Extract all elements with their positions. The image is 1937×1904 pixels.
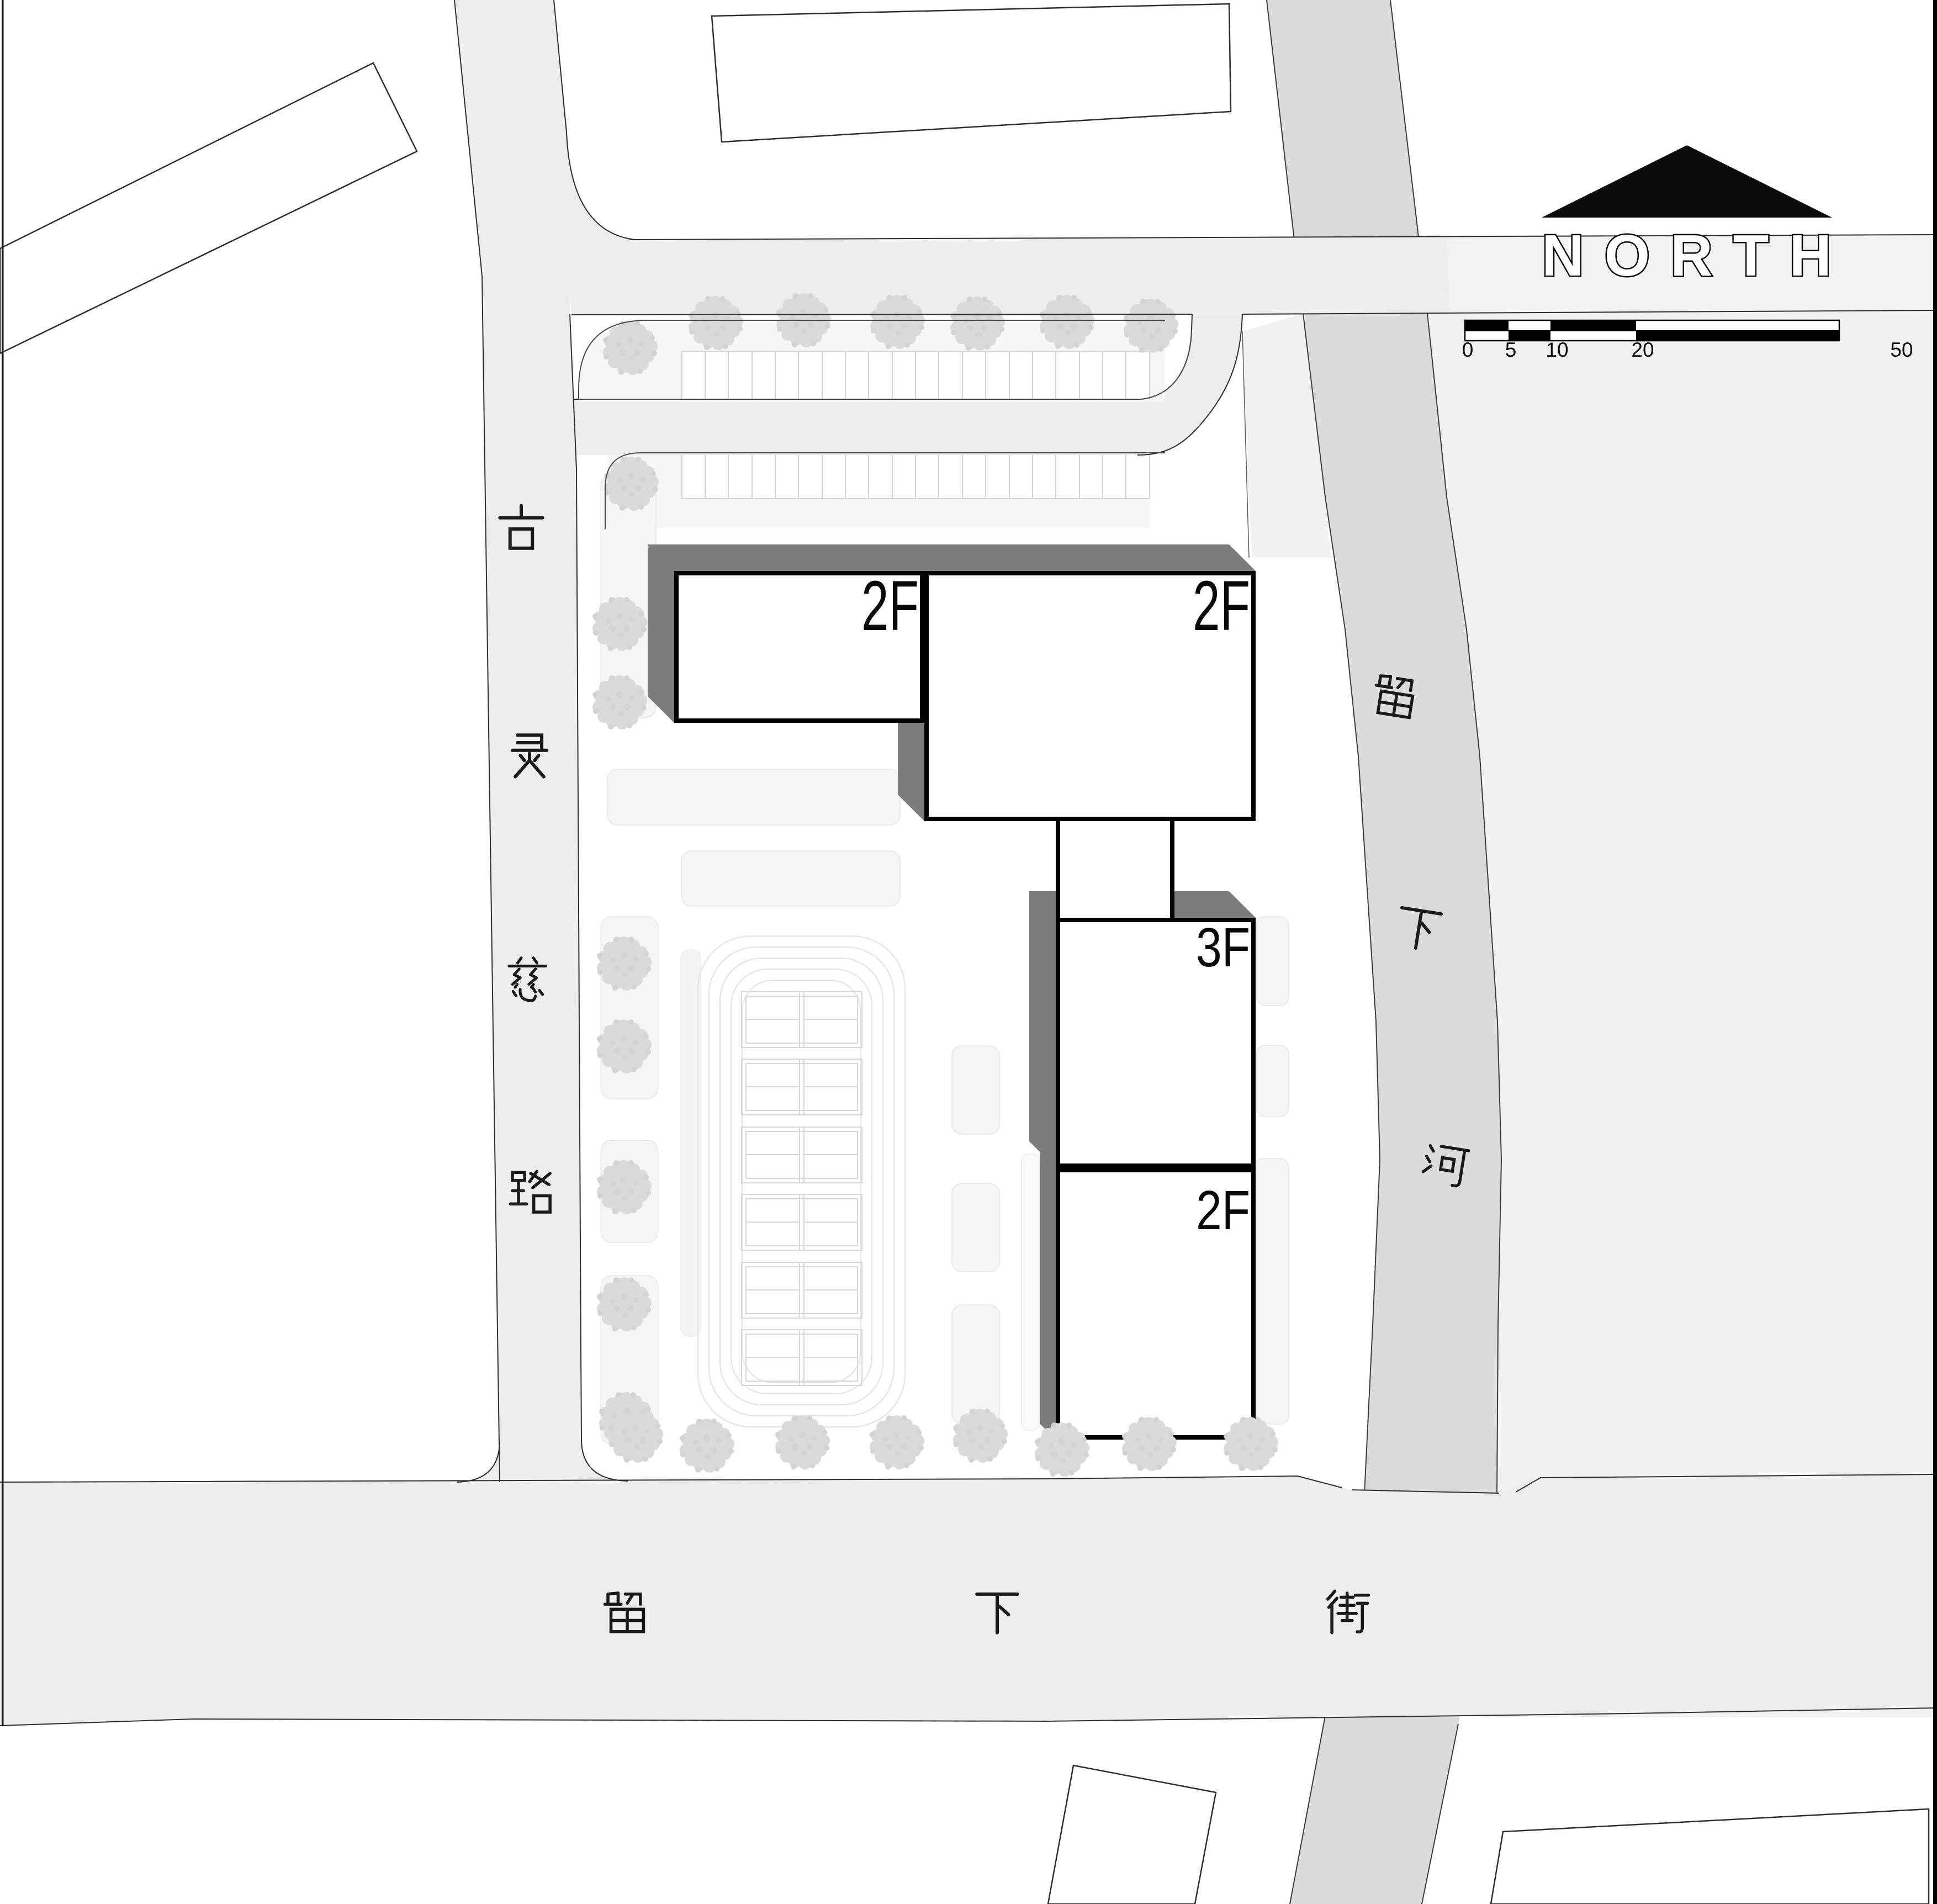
svg-text:10: 10 — [1546, 339, 1568, 361]
svg-text:NORTH: NORTH — [1542, 223, 1852, 288]
svg-text:0: 0 — [1462, 339, 1474, 361]
svg-text:2F: 2F — [861, 567, 919, 646]
svg-text:5: 5 — [1505, 339, 1517, 361]
svg-text:20: 20 — [1631, 339, 1654, 361]
svg-text:3F: 3F — [1196, 917, 1250, 979]
svg-text:2F: 2F — [1196, 1180, 1250, 1241]
svg-text:50: 50 — [1890, 339, 1913, 361]
svg-text:2F: 2F — [1193, 567, 1250, 646]
